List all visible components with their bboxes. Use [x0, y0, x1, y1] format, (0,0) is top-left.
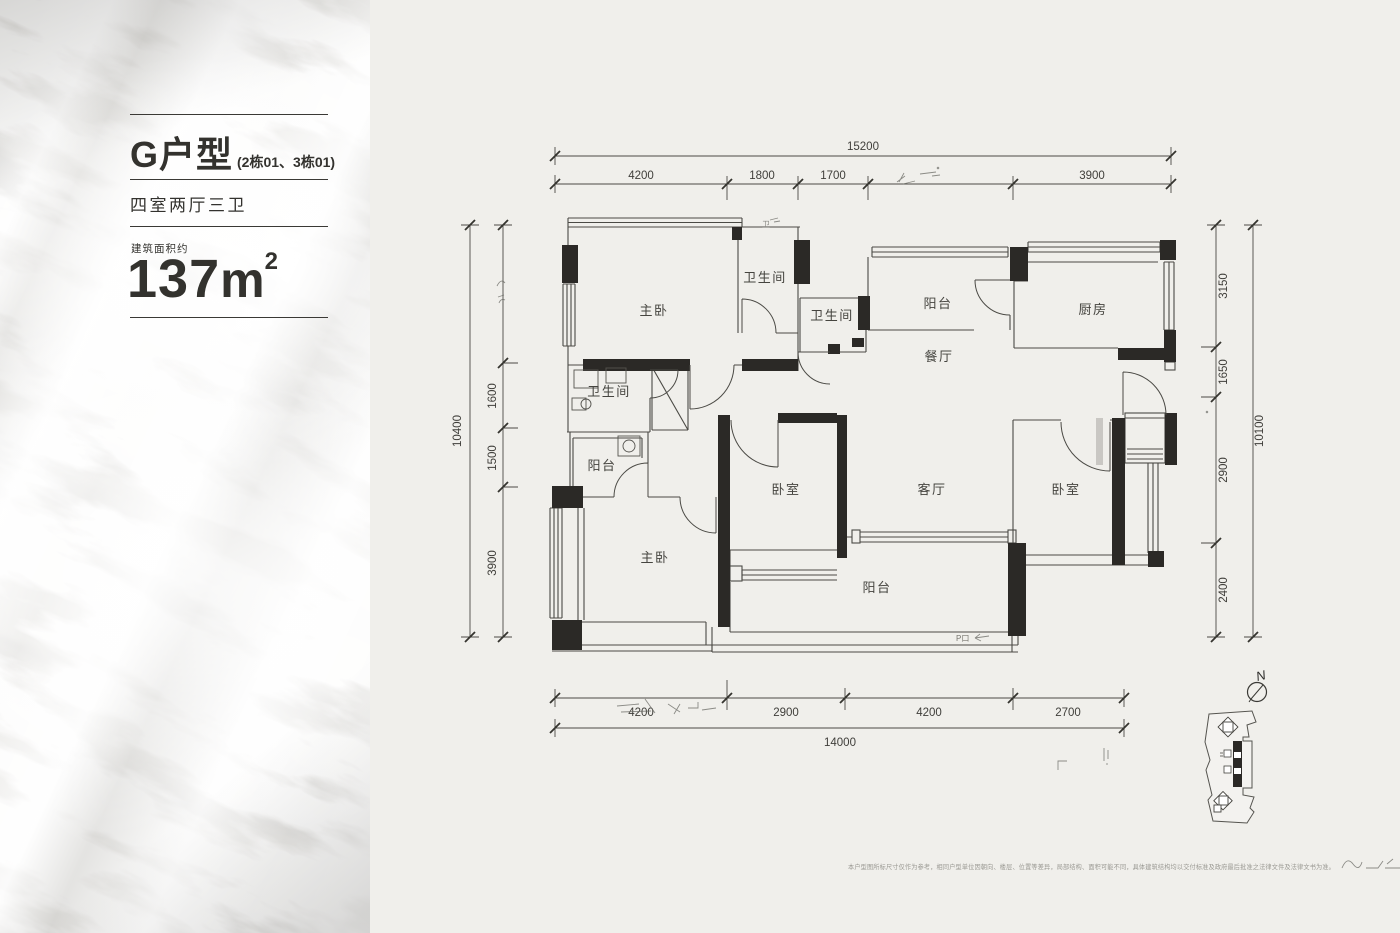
dim-label: 1700 — [820, 170, 846, 182]
dim-right-total: 10100 — [1254, 415, 1266, 447]
dim-label: 2900 — [1218, 457, 1230, 483]
dim-left-total: 10400 — [452, 415, 464, 447]
bathroom-fixtures — [572, 368, 640, 456]
tiny-mark-label: 卫 — [762, 220, 770, 229]
dim-label: 4200 — [628, 170, 654, 182]
dim-label: 4200 — [628, 707, 654, 719]
dim-bottom-total: 14000 — [824, 737, 856, 749]
north-label: N — [1255, 667, 1268, 684]
room-label: 卧室 — [771, 482, 800, 497]
dim-label: 1500 — [487, 445, 499, 471]
dim-label: 2700 — [1055, 707, 1081, 719]
room-label: 卫生间 — [587, 384, 631, 399]
room-labels: 主卧 卫生间 卫生间 阳台 厨房 餐厅 卫生间 阳台 主卧 卧室 客厅 卧室 阳… — [587, 270, 1107, 595]
compass-icon: N — [1248, 667, 1268, 702]
door-arcs — [614, 280, 1166, 533]
site-plan — [1205, 711, 1256, 823]
room-label: 阳台 — [587, 458, 616, 473]
room-label: 卫生间 — [810, 308, 854, 323]
balcony-edge-mark: P口 — [956, 634, 969, 643]
dim-label: 3900 — [1079, 170, 1105, 182]
room-label: 厨房 — [1078, 302, 1107, 317]
dim-label: 4200 — [916, 707, 942, 719]
room-label: 卫生间 — [743, 270, 787, 285]
dim-label: 3150 — [1218, 273, 1230, 299]
dim-label: 1800 — [749, 170, 775, 182]
dim-top-total: 15200 — [847, 141, 879, 153]
dimension-ticks — [465, 151, 1258, 733]
dim-label: 1600 — [487, 383, 499, 409]
room-label: 卧室 — [1051, 482, 1080, 497]
dim-label: 2900 — [773, 707, 799, 719]
dim-label: 2400 — [1218, 577, 1230, 603]
highlighted-building-bar — [1233, 741, 1242, 787]
dimension-labels: 15200 4200 1800 1700 3900 10400 1600 150… — [452, 141, 1266, 749]
room-label: 主卧 — [640, 550, 669, 565]
smudge-marks — [497, 167, 1400, 868]
room-label: 客厅 — [917, 482, 946, 497]
room-label: 餐厅 — [924, 349, 953, 364]
floorplan-page: { "colors":{"line":"#4b4a45","wall_fill"… — [0, 0, 1400, 933]
disclaimer-text: 本户型图所标尺寸仅作为参考，相同户型单位因朝向、楼层、位置等差异，局部结构、面积… — [848, 862, 1335, 871]
room-label: 阳台 — [923, 296, 952, 311]
room-label: 阳台 — [862, 580, 891, 595]
dim-label: 3900 — [487, 550, 499, 576]
room-label: 主卧 — [639, 303, 668, 318]
dim-label: 1650 — [1218, 359, 1230, 385]
floor-plan-svg: 主卧 卫生间 卫生间 阳台 厨房 餐厅 卫生间 阳台 主卧 卧室 客厅 卧室 阳… — [0, 0, 1400, 933]
